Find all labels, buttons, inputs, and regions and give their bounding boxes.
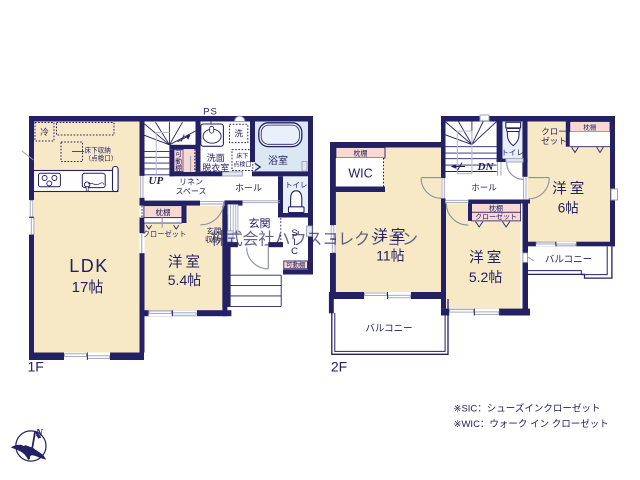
svg-text:玄関: 玄関 — [249, 216, 271, 230]
svg-text:株式会社ハウスコレクション: 株式会社ハウスコレクション — [211, 231, 419, 249]
svg-text:クローゼット: クローゼット — [143, 230, 187, 239]
svg-text:洗面: 洗面 — [207, 152, 225, 163]
svg-text:床下: 床下 — [236, 152, 248, 160]
svg-text:枕棚: 枕棚 — [156, 207, 171, 217]
svg-text:可: 可 — [175, 150, 182, 158]
svg-text:脱衣室: 脱衣室 — [202, 162, 229, 173]
svg-text:点検口: 点検口 — [233, 161, 251, 169]
svg-text:洋室: 洋室 — [552, 181, 587, 198]
svg-text:UP: UP — [149, 175, 164, 187]
svg-text:※WIC：ウォーク イン クローゼット: ※WIC：ウォーク イン クローゼット — [454, 418, 609, 430]
svg-text:浴室: 浴室 — [268, 154, 288, 167]
svg-text:2F: 2F — [331, 359, 347, 375]
svg-text:洋室: 洋室 — [469, 250, 504, 267]
svg-text:洗: 洗 — [234, 129, 243, 139]
svg-text:スペース: スペース — [175, 187, 206, 196]
svg-text:5.2帖: 5.2帖 — [469, 269, 502, 285]
svg-text:クローゼット: クローゼット — [475, 212, 517, 221]
svg-text:N: N — [35, 428, 44, 439]
svg-text:※SIC：シューズインクローゼット: ※SIC：シューズインクローゼット — [454, 403, 601, 415]
svg-text:WIC: WIC — [348, 167, 372, 181]
svg-text:1F: 1F — [28, 359, 44, 375]
svg-text:PS: PS — [203, 107, 218, 118]
svg-text:枕棚: 枕棚 — [489, 203, 503, 212]
svg-text:（点検口）: （点検口） — [85, 154, 118, 163]
svg-text:床下収納: 床下収納 — [85, 146, 112, 155]
svg-text:ホール: ホール — [235, 183, 262, 193]
svg-text:枕棚: 枕棚 — [583, 122, 597, 131]
svg-text:リネン: リネン — [179, 178, 203, 187]
svg-text:バルコニー: バルコニー — [545, 255, 592, 266]
svg-text:DN: DN — [477, 161, 495, 173]
svg-text:ゼット: ゼット — [541, 136, 567, 146]
svg-text:5.4帖: 5.4帖 — [168, 272, 201, 288]
svg-text:トイレ: トイレ — [501, 148, 524, 157]
svg-text:トイレ: トイレ — [285, 181, 308, 190]
svg-text:ホール: ホール — [471, 183, 497, 193]
svg-text:可動棚: 可動棚 — [286, 260, 306, 269]
svg-text:LDK: LDK — [69, 256, 109, 276]
svg-text:洋室: 洋室 — [168, 254, 203, 271]
svg-text:17帖: 17帖 — [72, 279, 104, 296]
svg-text:冷: 冷 — [40, 127, 49, 137]
svg-text:棚: 棚 — [175, 164, 182, 173]
svg-text:11帖: 11帖 — [376, 248, 405, 264]
svg-text:6帖: 6帖 — [558, 201, 579, 216]
svg-text:動: 動 — [175, 156, 182, 165]
svg-text:バルコニー: バルコニー — [365, 324, 412, 335]
svg-text:枕棚: 枕棚 — [354, 149, 368, 158]
